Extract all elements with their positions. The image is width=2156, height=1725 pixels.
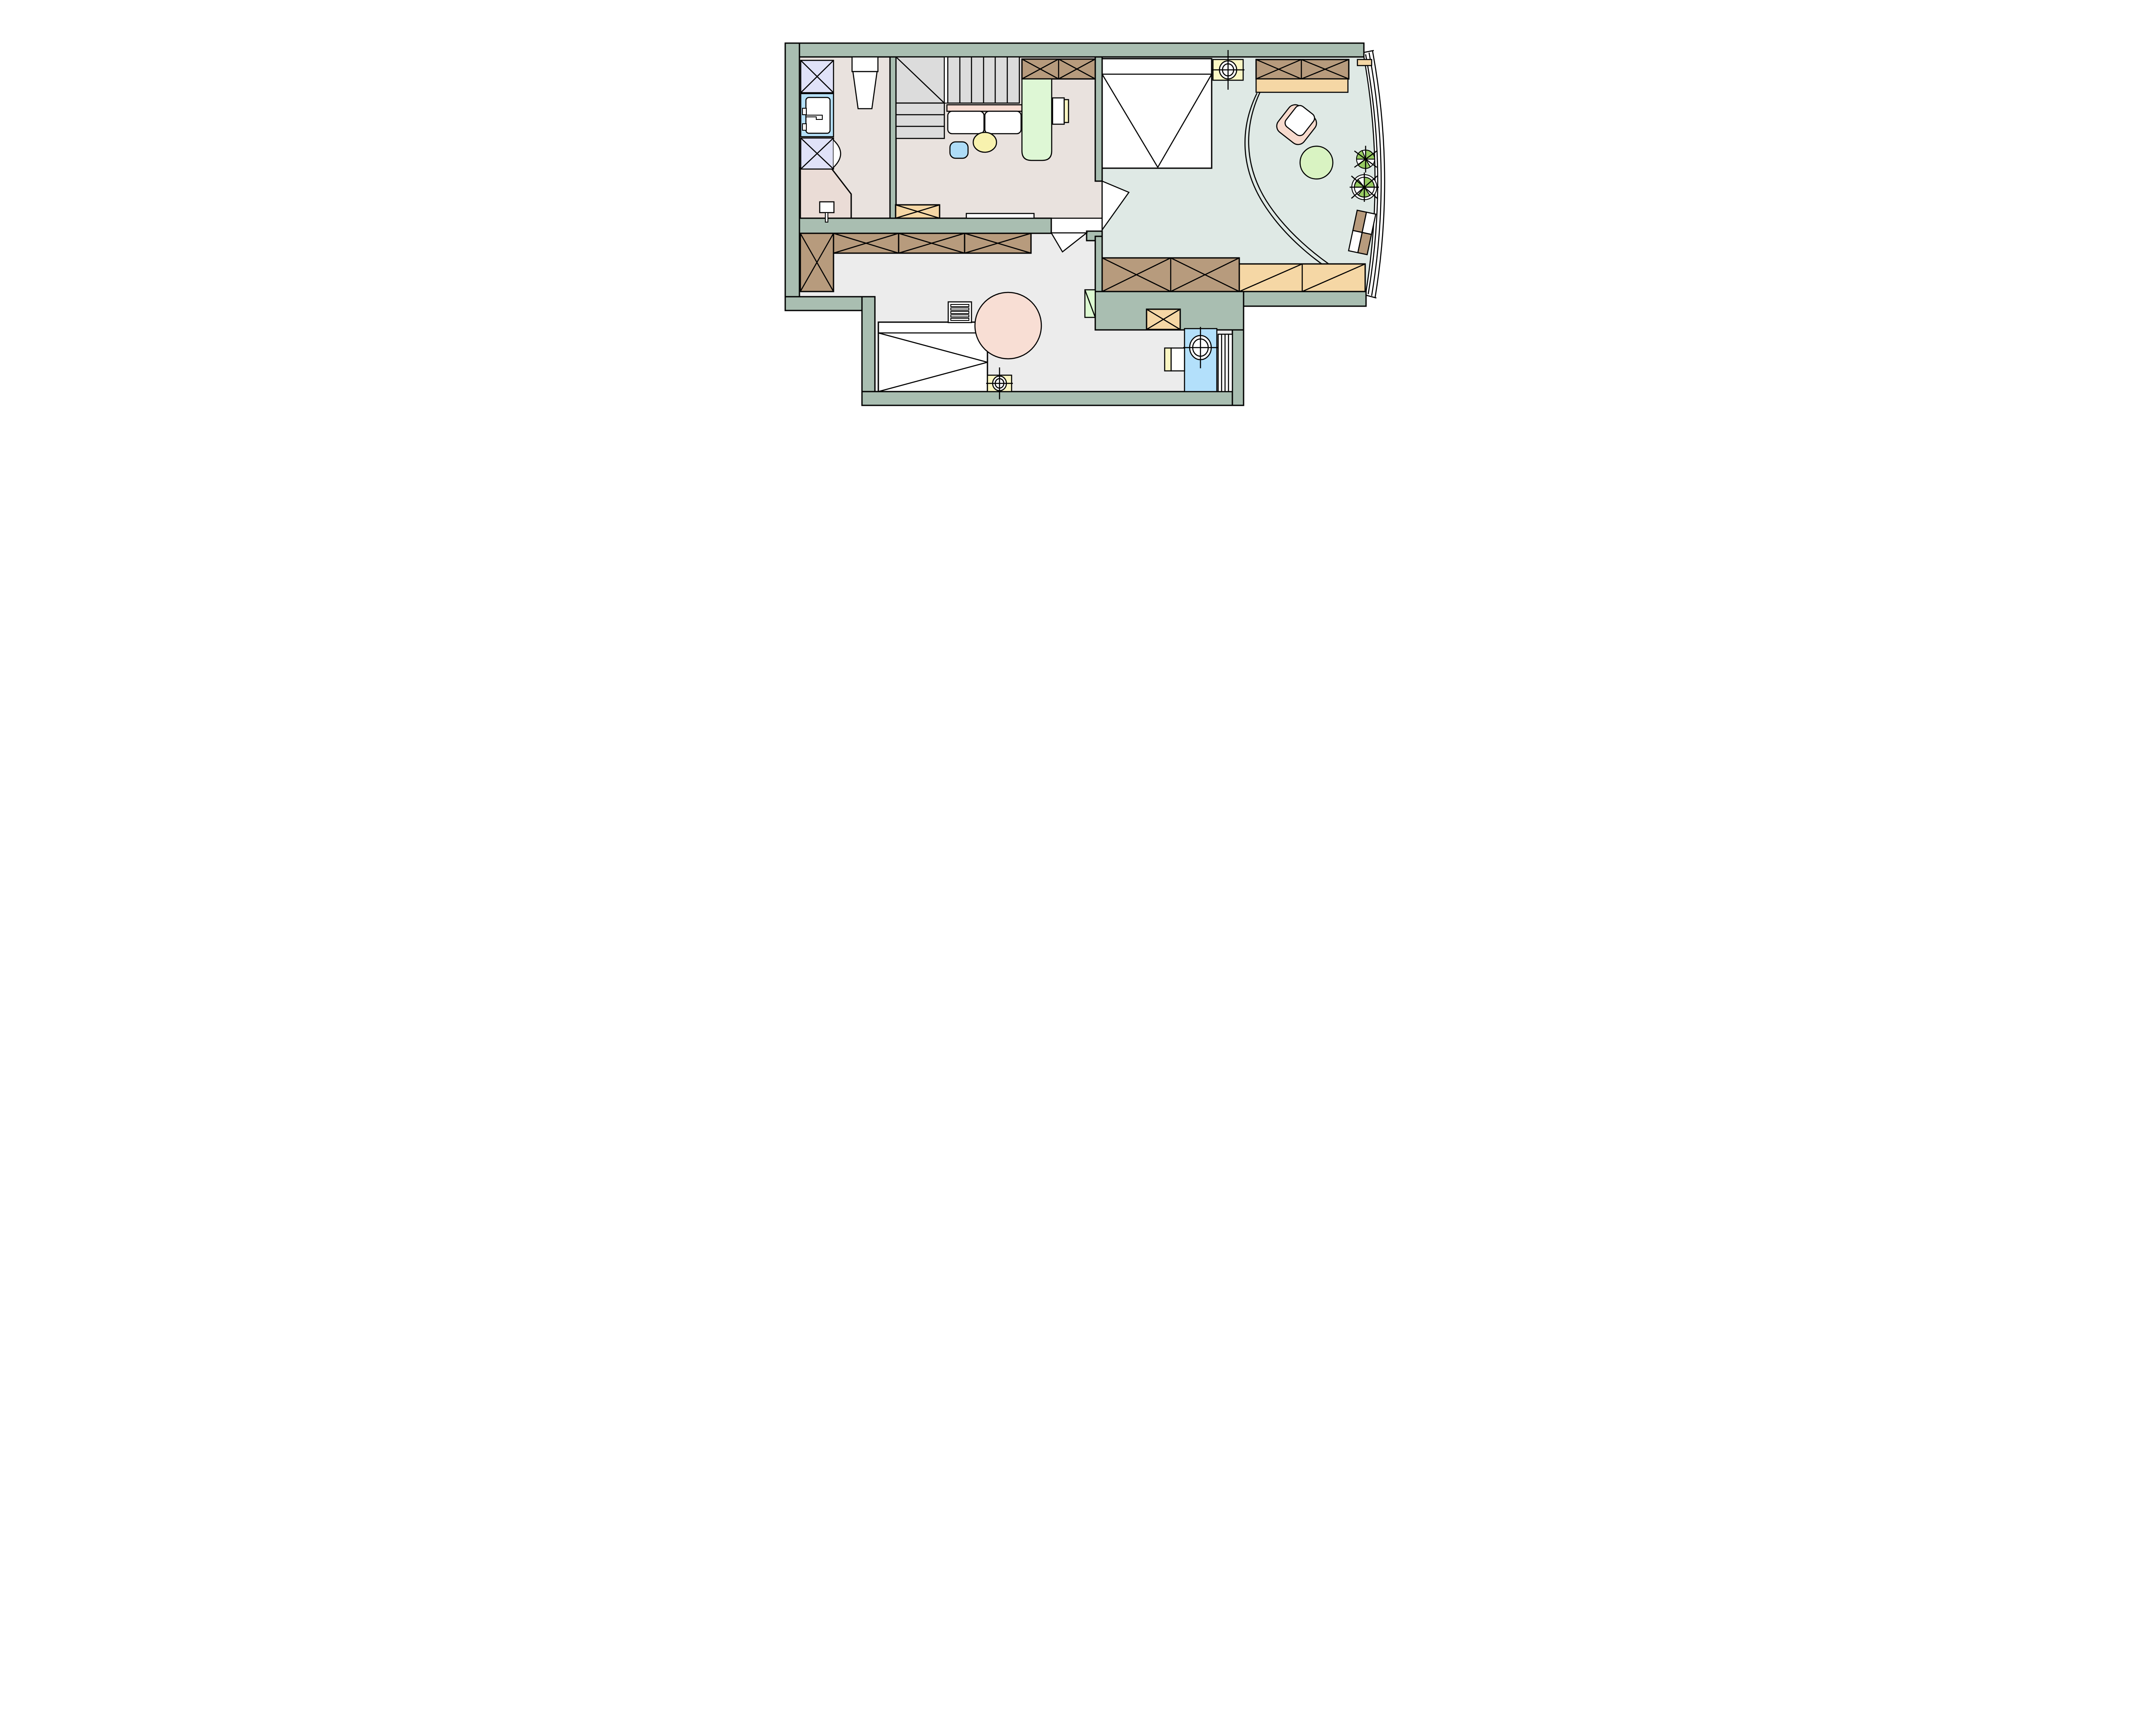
wall-mid bbox=[799, 218, 1051, 233]
radiator-grill-bed-slat-5 bbox=[951, 318, 969, 320]
sofa-back bbox=[947, 105, 1022, 111]
basin-top bbox=[852, 57, 878, 72]
wall-step-vertical bbox=[862, 297, 875, 405]
stairs-lower-treads bbox=[896, 103, 944, 138]
radiator-grill-bed-slat-1 bbox=[951, 304, 969, 307]
rug-round bbox=[975, 292, 1041, 359]
bed-double bbox=[1102, 59, 1212, 168]
chair-desk bbox=[1165, 348, 1171, 371]
wall-left bbox=[785, 43, 799, 310]
wall-center-lower bbox=[1095, 236, 1102, 292]
sofa-seat-right bbox=[985, 111, 1021, 134]
wall-top bbox=[785, 43, 1364, 57]
stool bbox=[950, 142, 968, 158]
wardrobe-bedroom bbox=[1256, 60, 1349, 79]
chair-kids bbox=[1064, 100, 1069, 122]
wc-lamp-stem bbox=[825, 213, 828, 222]
wall-stairs bbox=[890, 57, 896, 218]
sofa-seat-left bbox=[948, 111, 984, 134]
window-sill-stub bbox=[1357, 60, 1372, 66]
floor-plan bbox=[740, 0, 1416, 451]
wall-shelf bbox=[966, 213, 1034, 218]
floor-plan-svg bbox=[740, 0, 1416, 451]
radiator-grill-bed-slat-2 bbox=[951, 308, 969, 310]
wall-right-lower bbox=[1232, 330, 1244, 405]
desk-2 bbox=[1171, 348, 1185, 371]
wall-center-upper bbox=[1095, 57, 1102, 181]
radiator-grill-bed-slat-4 bbox=[951, 315, 969, 317]
side-table bbox=[973, 132, 997, 152]
desk-kids bbox=[1053, 98, 1064, 124]
bathtub-tap-1 bbox=[802, 108, 806, 115]
coffee-table bbox=[1300, 146, 1333, 179]
radiator-grill-bed-slat-3 bbox=[951, 311, 969, 314]
wc-lamp bbox=[820, 202, 834, 213]
bathtub-tap-2 bbox=[802, 124, 806, 130]
wall-bottom bbox=[862, 392, 1244, 405]
bed-kids bbox=[1022, 79, 1052, 160]
wardrobe-bedroom-front bbox=[1256, 79, 1348, 92]
